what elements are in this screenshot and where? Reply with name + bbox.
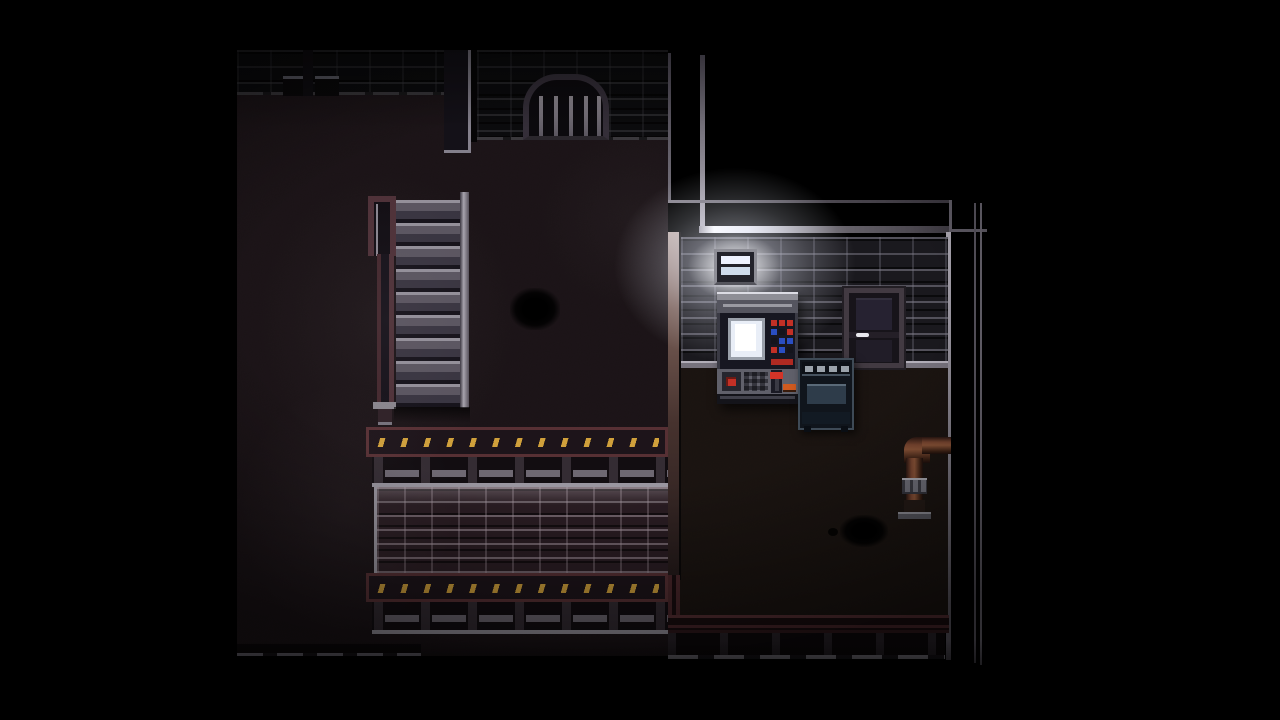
door-pane	[856, 298, 892, 330]
door-pane	[856, 340, 892, 362]
panel-button	[787, 347, 793, 353]
outer-wall-line	[980, 203, 982, 665]
wall-pipe	[922, 437, 951, 454]
panel-recess	[722, 372, 741, 391]
grate-bar-icon	[597, 96, 601, 140]
floor-stain	[840, 515, 888, 547]
outer-wall-line	[974, 203, 976, 663]
stove[interactable]	[798, 358, 854, 430]
stove-knob	[805, 366, 813, 372]
panel-button	[771, 329, 777, 335]
door-handle[interactable]	[856, 333, 869, 337]
red-button	[726, 377, 736, 386]
stove-leg	[841, 426, 848, 432]
stair-railing-post	[377, 254, 394, 404]
wall-lamp	[714, 249, 757, 285]
caution-stripes	[375, 584, 659, 593]
game-viewport	[0, 0, 1280, 720]
panel-button	[771, 347, 777, 353]
wall-edge-line	[668, 200, 952, 203]
stove-door-window	[807, 384, 846, 404]
panel-button	[779, 347, 785, 353]
brick-parapet	[374, 487, 668, 573]
panel-screen	[728, 318, 765, 360]
caution-ledge-lower	[366, 573, 668, 602]
panel-button	[771, 338, 777, 344]
wall-edge-line	[949, 200, 952, 232]
panel-base	[717, 394, 798, 404]
grate-bar-icon	[584, 96, 588, 140]
stove-top	[802, 362, 850, 376]
wall-edge-highlight	[699, 226, 949, 233]
orange-handle	[783, 384, 796, 392]
panel-button	[771, 320, 777, 326]
guard-railing-lower	[372, 602, 668, 634]
pipe-flange-plate	[898, 512, 931, 519]
letterbox-right	[987, 0, 1280, 720]
metal-door[interactable]	[844, 288, 904, 368]
right-room	[668, 0, 987, 668]
wall-alcove	[283, 76, 303, 96]
wall-side-edge	[668, 232, 681, 580]
panel-button-grid	[771, 320, 795, 358]
top-wall-left	[237, 50, 444, 95]
guard-railing-upper	[372, 457, 668, 487]
panel-button	[779, 338, 785, 344]
pipe-coupling	[902, 478, 927, 494]
panel-button	[787, 329, 793, 335]
panel-red-strip	[771, 359, 793, 365]
arched-grate	[523, 74, 609, 140]
control-panel[interactable]	[717, 292, 798, 404]
panel-button	[787, 338, 793, 344]
grate-bar-icon	[539, 96, 543, 140]
caution-stripes	[375, 438, 659, 447]
panel-button	[787, 320, 793, 326]
lower-ledge-left	[237, 644, 421, 656]
stair-railing-base	[378, 409, 392, 425]
stove-leg	[804, 426, 811, 432]
grate-bar-icon	[569, 96, 573, 140]
lamp-slat	[721, 256, 750, 264]
stair-railing-cap	[373, 402, 396, 409]
grate-bar-icon	[554, 96, 558, 140]
smoke-haze	[537, 130, 668, 310]
staircase[interactable]	[396, 200, 460, 407]
lever-slot	[771, 370, 782, 393]
stove-knob	[841, 366, 849, 372]
caution-ledge-upper	[366, 427, 668, 457]
floor-border-frame	[668, 615, 949, 633]
wall-edge-line	[668, 53, 671, 203]
panel-console	[717, 369, 798, 394]
letterbox-left	[0, 0, 237, 720]
stair-shadow	[394, 407, 470, 423]
panel-keypad	[744, 372, 768, 391]
wall-alcove	[315, 76, 339, 96]
left-room-floor	[237, 50, 668, 656]
wall-pillar-small	[303, 50, 313, 96]
panel-top-cap	[717, 292, 798, 300]
stair-side-rail	[460, 192, 469, 408]
stair-railing-hook	[368, 196, 396, 256]
floor-stain	[510, 288, 560, 330]
wall-corner-pillar	[444, 50, 471, 153]
lower-ledge-right	[668, 633, 945, 659]
stove-knob	[817, 366, 825, 372]
panel-neck	[717, 300, 798, 313]
stove-knob	[829, 366, 837, 372]
lamp-slat	[721, 267, 750, 275]
wall-base-trim	[237, 92, 444, 95]
lever-stem	[775, 379, 779, 391]
panel-lever[interactable]	[770, 372, 783, 379]
floor-stain-droplet	[828, 528, 838, 536]
panel-button	[779, 329, 785, 335]
panel-face	[717, 313, 798, 369]
stove-drawer	[802, 412, 850, 424]
panel-button	[779, 320, 785, 326]
